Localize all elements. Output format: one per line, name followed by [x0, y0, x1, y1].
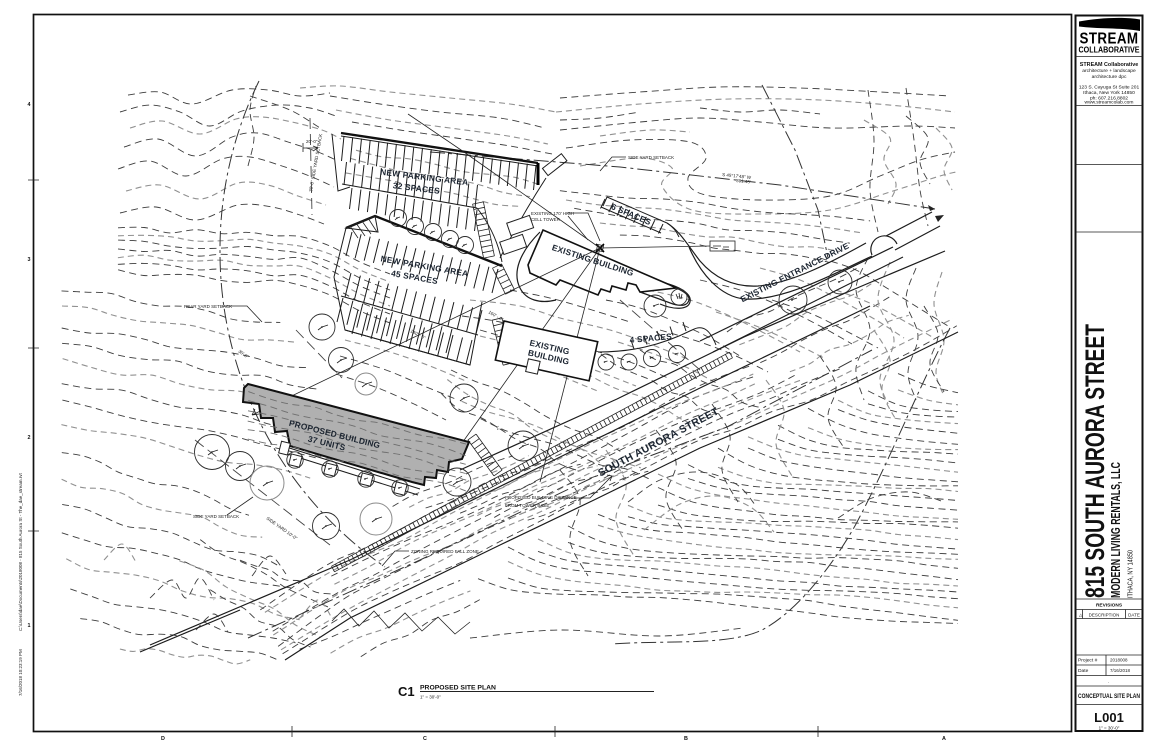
svg-text:FROM TOWER BASE: FROM TOWER BASE	[505, 503, 549, 508]
svg-text:C:\Users\dae\Documents\2018008: C:\Users\dae\Documents\2018008 - 815 Sou…	[18, 472, 23, 631]
svg-text:A: A	[942, 736, 946, 742]
svg-text:1: 1	[28, 623, 31, 629]
svg-text:PROPOSED SITE PLAN: PROPOSED SITE PLAN	[420, 685, 496, 692]
svg-text:PROPOSED BUILDING DISTANCE: PROPOSED BUILDING DISTANCE	[505, 495, 577, 500]
svg-text:ZONING REQUIRED FALL ZONE: ZONING REQUIRED FALL ZONE	[411, 549, 479, 554]
svg-text:7/16/2018 10:23:19 PM: 7/16/2018 10:23:19 PM	[18, 649, 23, 696]
svg-text:SIDE YARD SETBACK: SIDE YARD SETBACK	[193, 514, 239, 519]
svg-text:SIDE YARD SETBACK: SIDE YARD SETBACK	[628, 155, 674, 160]
svg-text:COLLABORATIVE: COLLABORATIVE	[1079, 45, 1140, 55]
svg-text:DATE: DATE	[1128, 613, 1140, 618]
svg-text:4: 4	[28, 102, 31, 108]
svg-text:architecture dpc: architecture dpc	[1092, 74, 1127, 80]
svg-text:EXISTING 170' HIGH: EXISTING 170' HIGH	[531, 211, 574, 216]
svg-text:D: D	[161, 736, 165, 742]
svg-text:REAR YARD SETBACK: REAR YARD SETBACK	[184, 304, 232, 309]
svg-text:123 S. Cayuga St Suite 201: 123 S. Cayuga St Suite 201	[1079, 85, 1140, 91]
svg-text:815 SOUTH AURORA STREET: 815 SOUTH AURORA STREET	[1080, 324, 1110, 598]
svg-text:20'-0": 20'-0"	[306, 139, 318, 144]
svg-text:architecture + landscape: architecture + landscape	[1082, 68, 1136, 74]
svg-text:CONCEPTUAL SITE PLAN: CONCEPTUAL SITE PLAN	[1078, 693, 1140, 700]
svg-text:C: C	[423, 736, 427, 742]
svg-text:MODERN LIVING RENTALS, LLC: MODERN LIVING RENTALS, LLC	[1108, 462, 1123, 598]
svg-text:CELL TOWER: CELL TOWER	[531, 217, 561, 222]
svg-text:7/16/2018: 7/16/2018	[1110, 668, 1131, 673]
svg-text:STREAM Collaborative: STREAM Collaborative	[1080, 62, 1138, 68]
svg-text:Project #: Project #	[1078, 658, 1098, 664]
svg-text:Date: Date	[1078, 668, 1089, 674]
svg-text:L001: L001	[1094, 710, 1124, 725]
svg-text:C1: C1	[398, 684, 415, 699]
svg-text:REVISIONS: REVISIONS	[1096, 603, 1123, 609]
svg-text:1" = 30'-0": 1" = 30'-0"	[420, 695, 441, 700]
svg-text:DESCRIPTION: DESCRIPTION	[1089, 613, 1120, 618]
svg-text:.: .	[1108, 679, 1109, 684]
svg-text:1" = 30'-0": 1" = 30'-0"	[1099, 726, 1120, 731]
svg-text:2018008: 2018008	[1110, 658, 1128, 663]
svg-text:B: B	[684, 736, 688, 742]
svg-text:Ithaca, New York 14850: Ithaca, New York 14850	[1083, 90, 1135, 96]
svg-text:ITHACA, NY 14850: ITHACA, NY 14850	[1128, 550, 1135, 598]
svg-text:www.streamcolab.com: www.streamcolab.com	[1085, 100, 1134, 106]
svg-text:3: 3	[28, 257, 31, 263]
svg-text:△: △	[1079, 613, 1083, 618]
svg-text:2: 2	[28, 435, 31, 441]
